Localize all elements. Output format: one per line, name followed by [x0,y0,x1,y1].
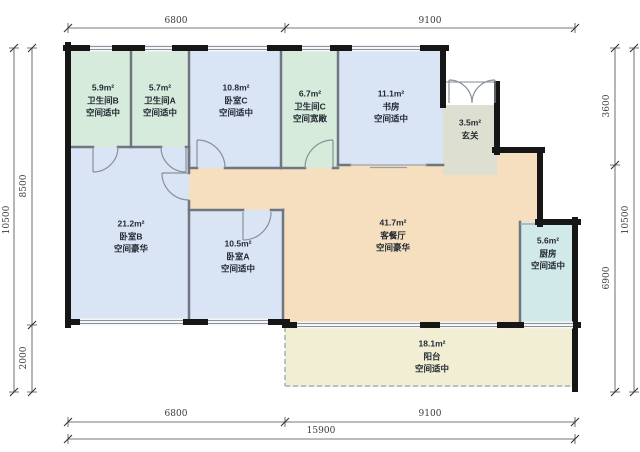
room-grade: 空间适中 [221,262,255,275]
room-name: 客餐厅 [376,229,410,242]
dim-top-right: 9100 [419,16,442,26]
dim-left-total: 10500 [2,206,12,235]
label-bedroom-a: 10.5m² 卧室A 空间适中 [221,237,255,275]
room-grade: 空间适中 [143,106,177,119]
room-name: 卫生间C [293,100,327,113]
label-bedroom-c: 10.8m² 卧室C 空间适中 [219,81,253,119]
dim-bottom-total: 15900 [307,426,336,436]
room-grade: 空间适中 [219,106,253,119]
room-grade: 空间豪华 [114,242,148,255]
room-name: 书房 [374,100,408,113]
room-name: 卫生间A [143,94,177,107]
room-grade: 空间适中 [415,362,449,375]
label-bathroom-a: 5.7m² 卫生间A 空间适中 [143,81,177,119]
label-entry: 3.5m² 玄关 [459,117,481,142]
label-living: 41.7m² 客餐厅 空间豪华 [376,216,410,254]
room-grade: 空间豪华 [376,241,410,254]
dim-left-upper: 8500 [19,175,29,198]
label-balcony: 18.1m² 阳台 空间适中 [415,337,449,375]
room-area: 5.6m² [531,234,565,247]
room-name: 卧室B [114,230,148,243]
floor-plan: 5.9m² 卫生间B 空间适中 5.7m² 卫生间A 空间适中 10.8m² 卧… [0,0,640,452]
room-area: 10.8m² [219,81,253,94]
room-name: 卫生间B [86,94,120,107]
room-name: 卧室A [221,250,255,263]
label-bathroom-c: 6.7m² 卫生间C 空间宽敞 [293,87,327,125]
room-area: 21.2m² [114,217,148,230]
dim-right-upper: 3600 [602,95,612,118]
room-area: 5.9m² [86,81,120,94]
dim-top-left: 6800 [165,16,188,26]
label-bedroom-b: 21.2m² 卧室B 空间豪华 [114,217,148,255]
room-area: 10.5m² [221,237,255,250]
label-bathroom-b: 5.9m² 卫生间B 空间适中 [86,81,120,119]
dim-right-lower: 6900 [602,267,612,290]
label-study: 11.1m² 书房 空间适中 [374,87,408,125]
room-area: 6.7m² [293,87,327,100]
label-kitchen: 5.6m² 厨房 空间适中 [531,234,565,272]
room-grade: 空间适中 [531,259,565,272]
room-name: 玄关 [459,129,481,142]
floor-plan-drawing [0,0,640,452]
room-area: 5.7m² [143,81,177,94]
entry-double-door [449,80,495,103]
room-area: 3.5m² [459,117,481,130]
dim-left-lower: 2000 [19,347,29,370]
dim-right-total: 10500 [621,206,631,235]
room-name: 卧室C [219,94,253,107]
room-name: 厨房 [531,247,565,260]
room-name: 阳台 [415,350,449,363]
room-area: 41.7m² [376,216,410,229]
room-grade: 空间宽敞 [293,112,327,125]
room-area: 18.1m² [415,337,449,350]
room-grade: 空间适中 [86,106,120,119]
room-area: 11.1m² [374,87,408,100]
dim-bottom-right: 9100 [419,409,442,419]
dim-bottom-left: 6800 [165,409,188,419]
room-grade: 空间适中 [374,112,408,125]
